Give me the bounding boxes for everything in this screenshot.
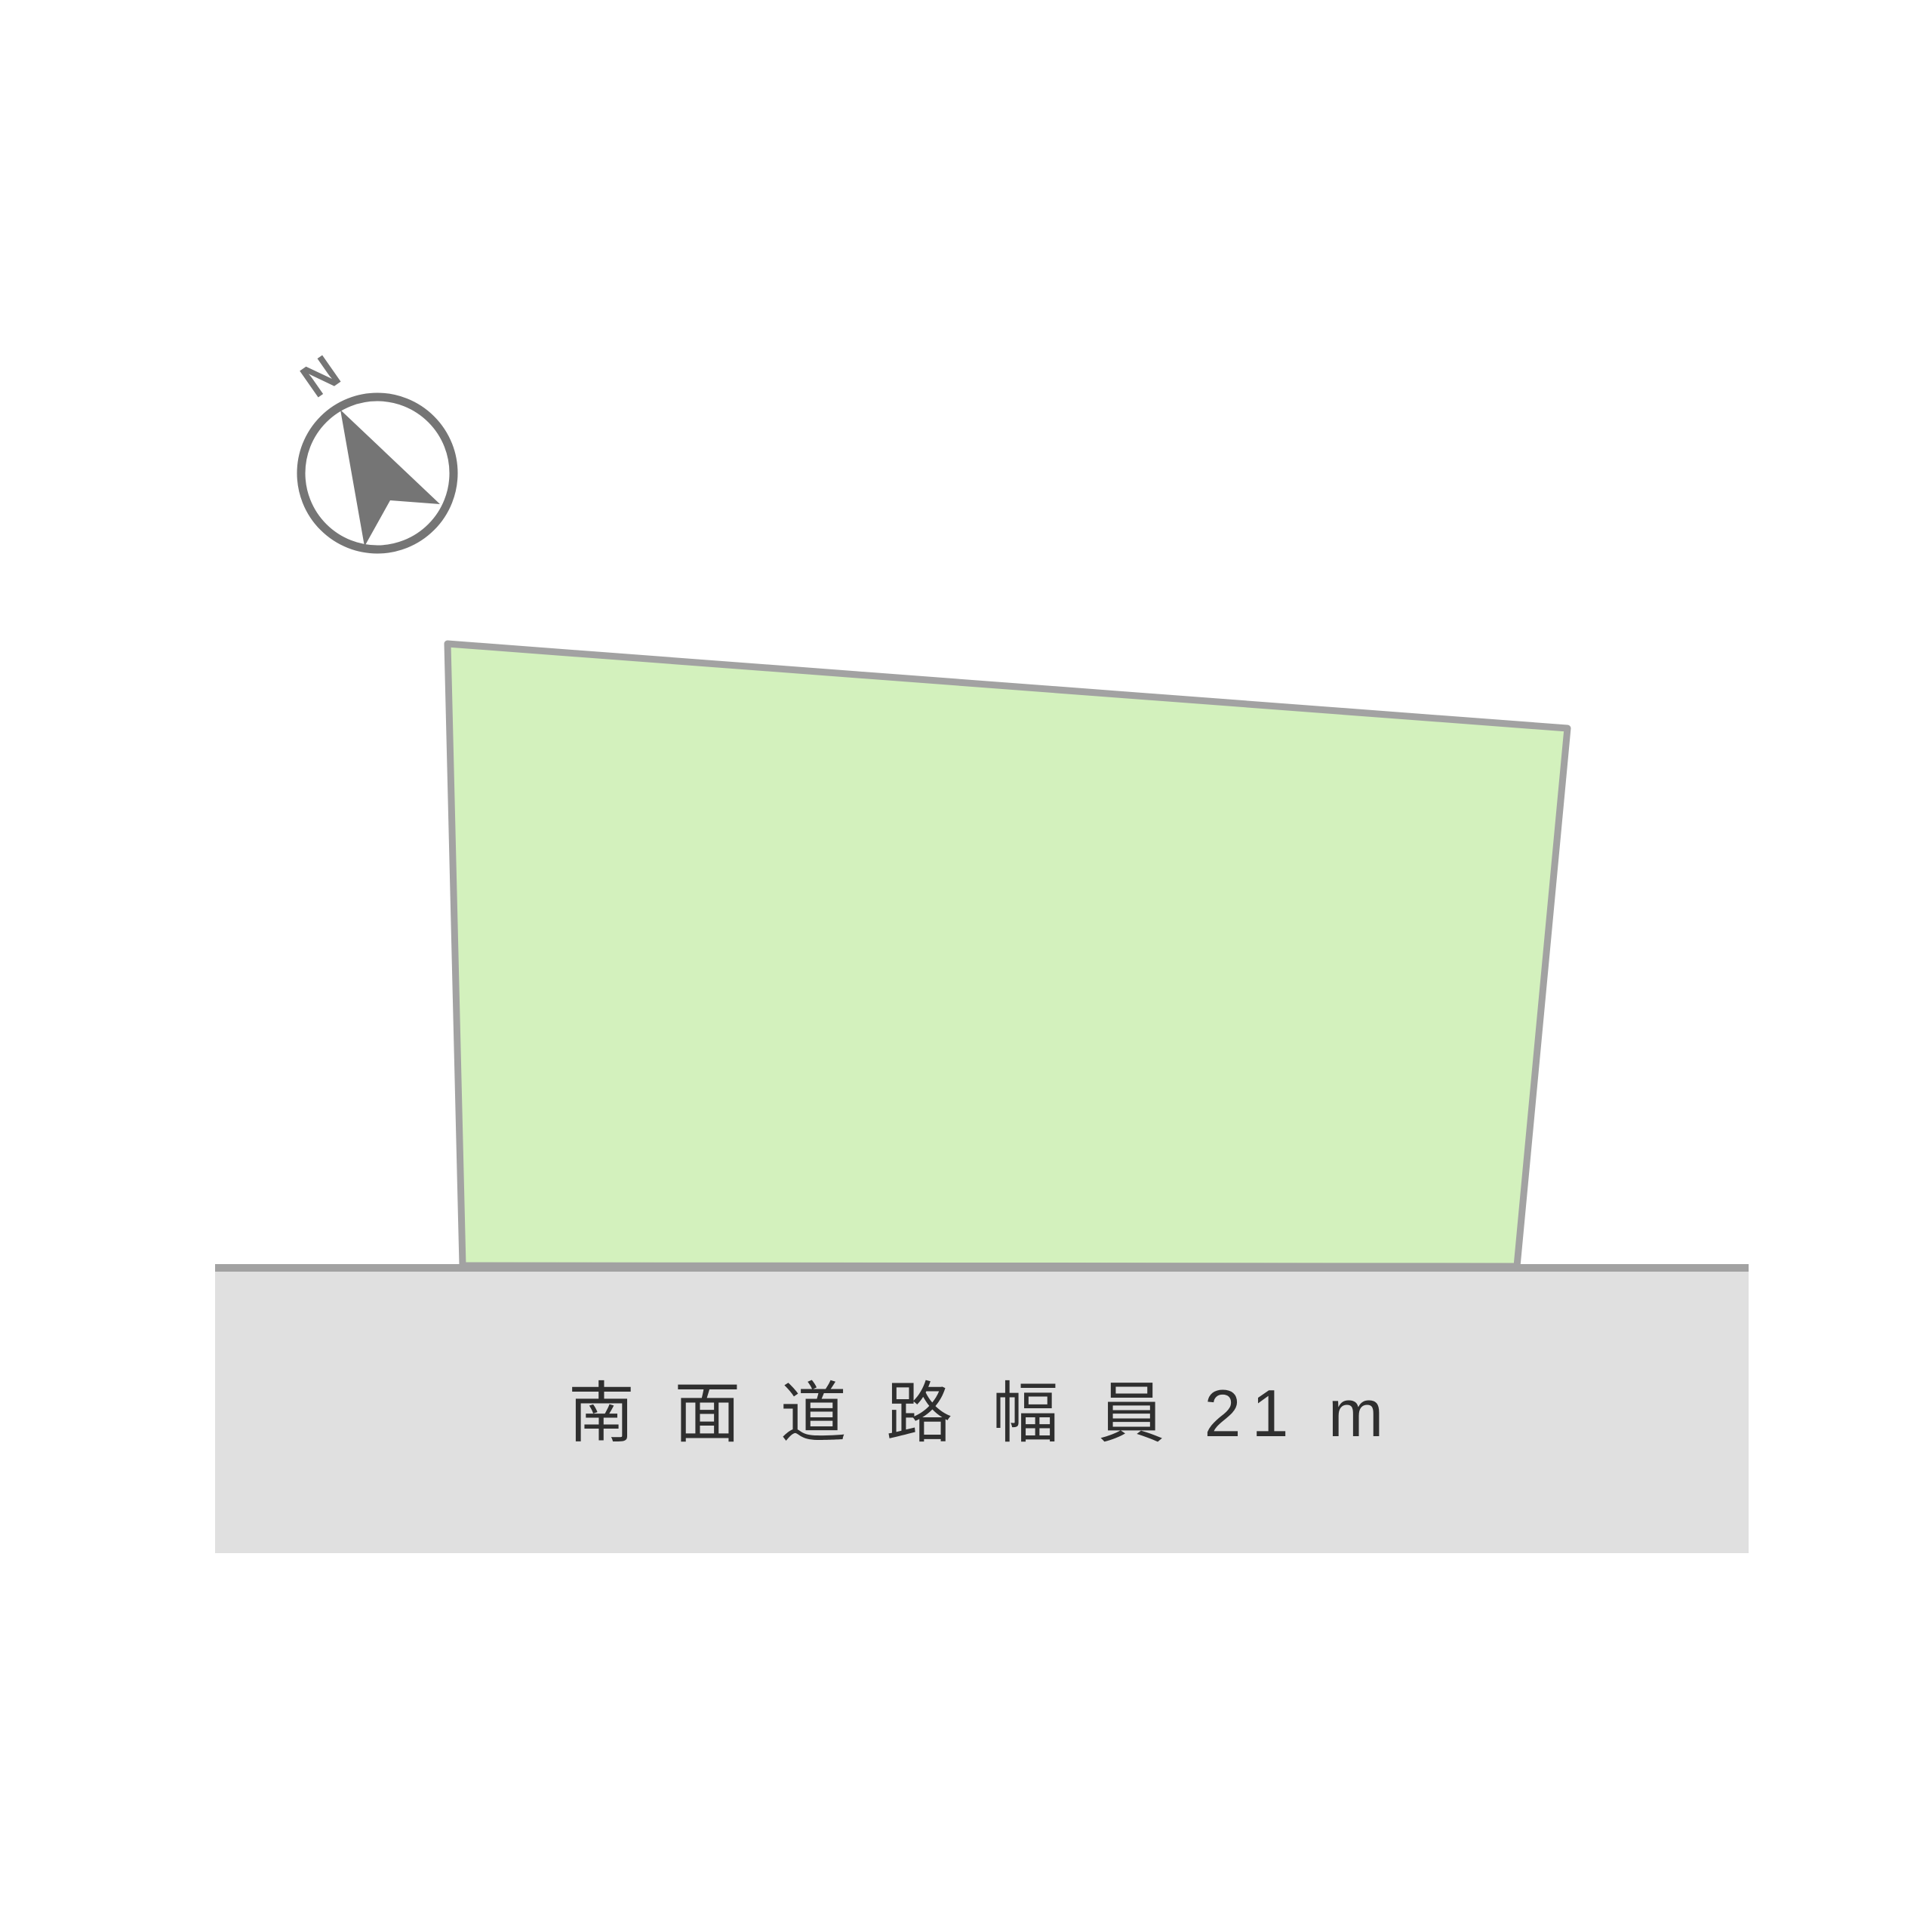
land-parcel-shape <box>448 644 1567 1266</box>
compass-icon: N <box>292 346 454 549</box>
road-top-border <box>215 1264 1749 1272</box>
compass-north-label: N <box>292 346 349 408</box>
road-width-label: 南 面 道 路 幅 員 21 m <box>568 1376 1394 1451</box>
road-band: 南 面 道 路 幅 員 21 m <box>215 1264 1749 1553</box>
compass-north-arrow-icon <box>340 410 440 546</box>
plot-diagram-canvas: 南 面 道 路 幅 員 21 m N <box>0 0 1932 1932</box>
land-plot-diagram: 南 面 道 路 幅 員 21 m N <box>0 0 1932 1932</box>
